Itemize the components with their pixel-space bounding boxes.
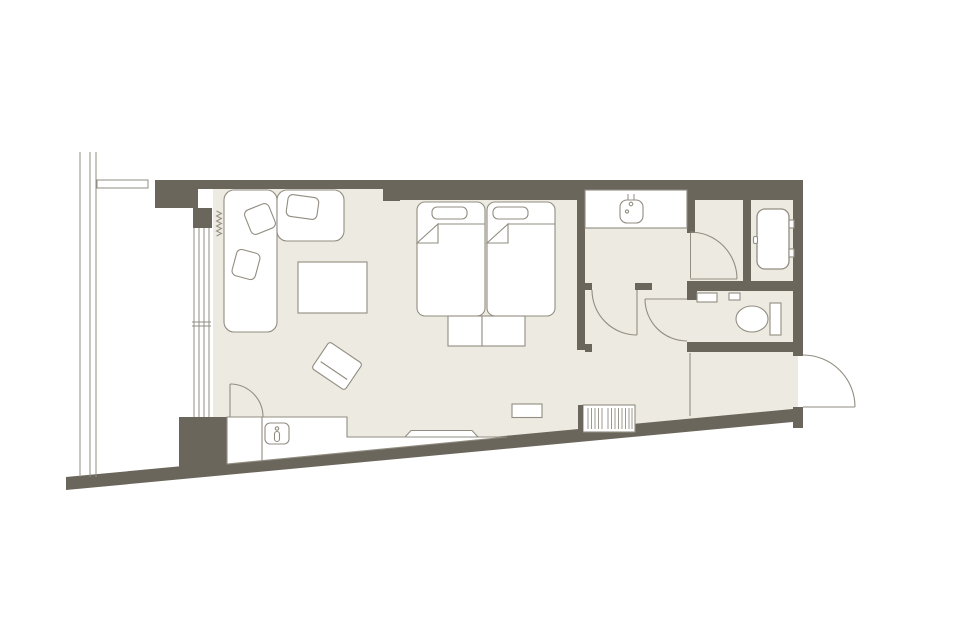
entry-post [578, 405, 583, 433]
bed-2-pillow [493, 207, 528, 219]
entry-bench [512, 404, 542, 418]
wall-top-beds [400, 180, 577, 200]
wall-vanity-stub-left [585, 283, 592, 290]
sofa-cushion-3 [286, 194, 320, 220]
wall-left-upper [155, 180, 198, 208]
wall-bath-band [687, 281, 803, 291]
wall-top-column [383, 180, 400, 201]
wc-control [729, 293, 740, 300]
entrance-door-arc [803, 355, 855, 407]
bathtub-grip [754, 237, 758, 244]
wall-partition [687, 189, 695, 233]
bathtub [757, 209, 789, 269]
wall-entry-corner [793, 407, 803, 428]
wall-left-step [193, 208, 212, 228]
balcony-divider [97, 180, 148, 188]
coffee-table [298, 262, 367, 313]
floor-plan-svg [0, 0, 960, 640]
wall-right-outer [793, 180, 803, 356]
tv [405, 431, 478, 438]
wall-top-bathroom [690, 180, 803, 200]
wall-hall-stub [585, 344, 592, 352]
wall-wc-stub [687, 290, 697, 300]
wall-wc-bottom [687, 342, 803, 352]
floor-plan [0, 0, 960, 640]
luggage-rack [583, 405, 635, 432]
vanity-sink [620, 200, 643, 223]
toilet-bowl [736, 306, 768, 332]
wall-washroom-divider [577, 189, 585, 350]
balcony-railing [80, 152, 96, 477]
foot-bench-2 [482, 316, 525, 346]
foot-bench-1 [448, 316, 482, 346]
bed-1-pillow [432, 207, 467, 219]
wall-vanity-stub-right [635, 283, 652, 290]
wall-tub-door-panel [743, 200, 751, 281]
minibar-sink [265, 423, 289, 444]
wc-shelf [697, 293, 717, 302]
toilet-tank [770, 303, 781, 335]
wall-top-washroom [577, 180, 690, 190]
bathtub-ledge-1 [789, 220, 794, 228]
bathtub-ledge-2 [789, 249, 794, 257]
